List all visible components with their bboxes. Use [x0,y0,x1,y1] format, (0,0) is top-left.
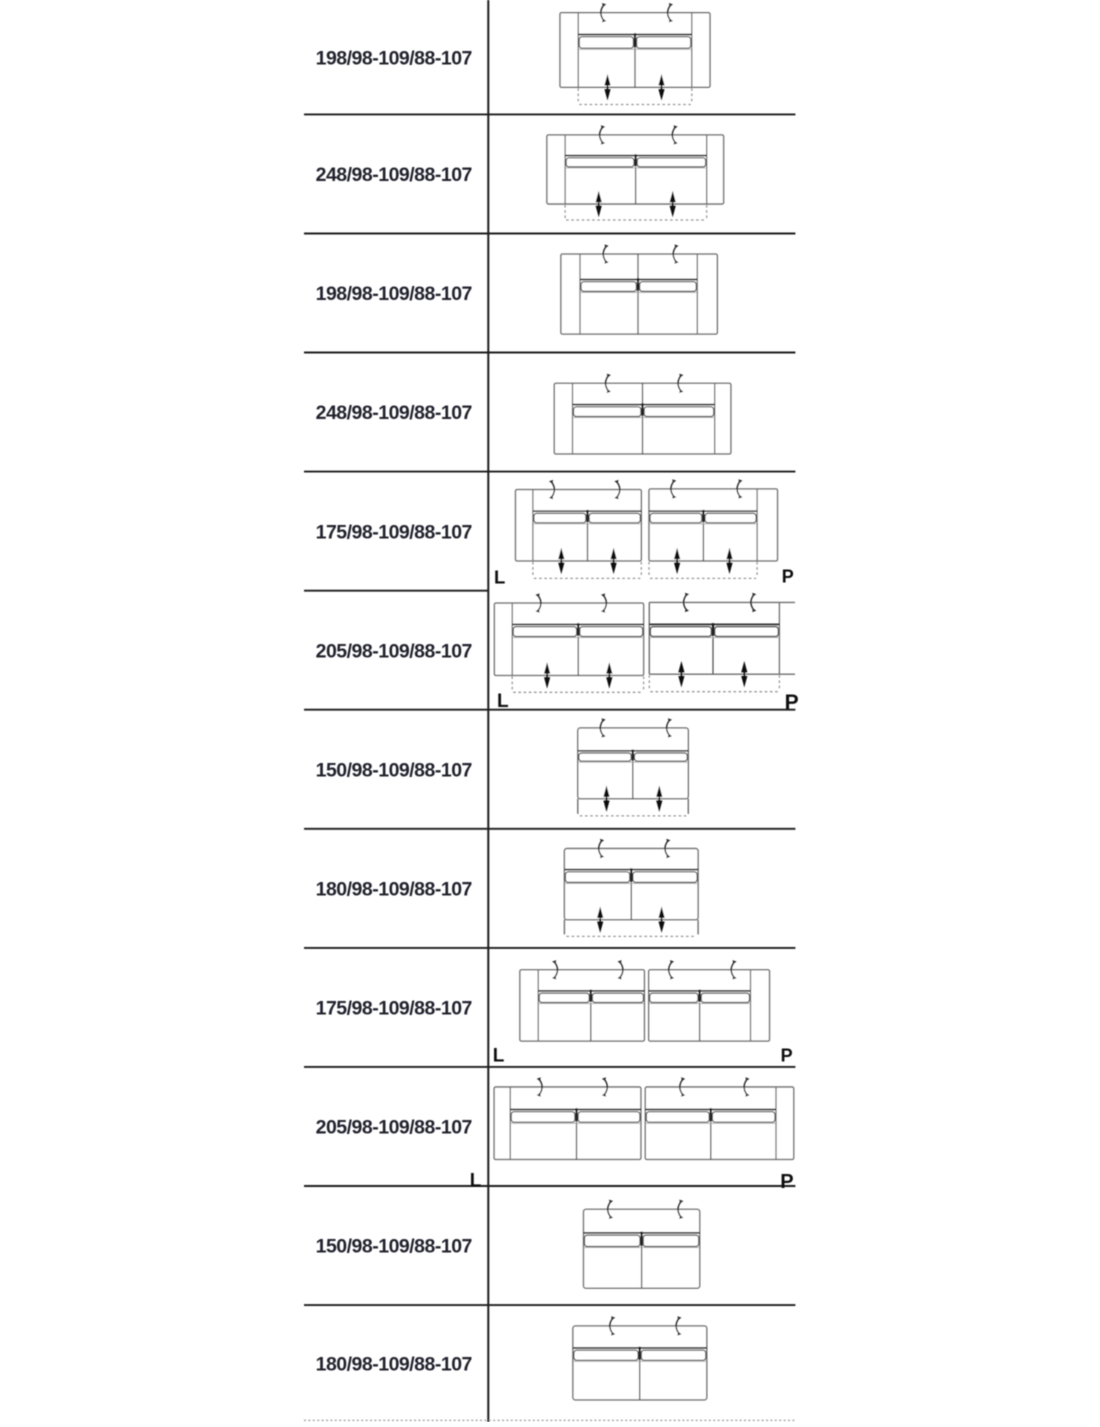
svg-text:248/98-109/88-107: 248/98-109/88-107 [316,402,472,424]
svg-text:P: P [782,567,794,587]
svg-text:P: P [781,1045,793,1065]
svg-text:150/98-109/88-107: 150/98-109/88-107 [316,1236,472,1258]
svg-text:248/98-109/88-107: 248/98-109/88-107 [316,164,472,186]
svg-text:180/98-109/88-107: 180/98-109/88-107 [316,878,472,900]
svg-text:P: P [785,691,799,714]
svg-text:198/98-109/88-107: 198/98-109/88-107 [316,283,472,305]
svg-text:198/98-109/88-107: 198/98-109/88-107 [316,47,472,69]
svg-text:P: P [780,1171,793,1193]
svg-text:150/98-109/88-107: 150/98-109/88-107 [316,759,472,781]
svg-text:205/98-109/88-107: 205/98-109/88-107 [316,1117,472,1139]
svg-text:L: L [493,1045,505,1066]
svg-text:180/98-109/88-107: 180/98-109/88-107 [316,1354,472,1376]
svg-text:L: L [494,567,505,588]
svg-text:175/98-109/88-107: 175/98-109/88-107 [316,521,472,543]
svg-text:205/98-109/88-107: 205/98-109/88-107 [316,640,472,662]
svg-text:175/98-109/88-107: 175/98-109/88-107 [316,998,472,1020]
svg-text:L: L [497,691,509,712]
svg-text:L: L [470,1171,482,1192]
